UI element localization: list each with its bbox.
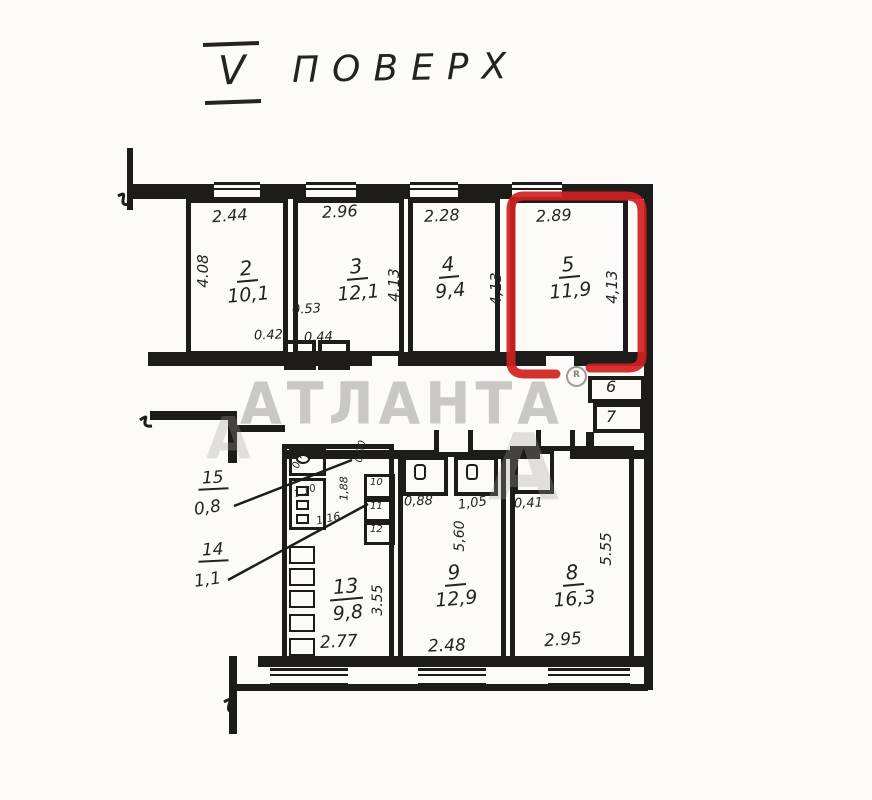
room-14-number: 14 [197, 539, 228, 563]
kitchen-fixture-icon [289, 590, 315, 608]
dim-closet-right: 0.44 [304, 329, 333, 345]
room-13-area: 9,8 [332, 601, 364, 626]
watermark-ghost-letter: А [488, 414, 559, 521]
room-13-number: 13 [328, 573, 364, 602]
dim-cluster-height: 1,88 [338, 459, 351, 519]
outer-wall-left-stub [127, 148, 133, 210]
room-2-label: 2 10,1 [224, 254, 271, 307]
room-7-outline [593, 403, 644, 433]
room-3-area: 12,1 [336, 280, 380, 306]
room-4-label: 4 9,4 [432, 251, 466, 303]
window-icon [418, 668, 486, 688]
kitchen-fixture-icon [289, 546, 315, 564]
room-6-number: 6 [606, 377, 616, 396]
room-12-number: 12 [370, 524, 383, 535]
lower-left-wall [229, 656, 237, 734]
window-icon [548, 668, 630, 688]
dim-room2-width: 2.44 [211, 205, 248, 226]
room-13-label: 13 9,8 [328, 573, 366, 626]
toilet-icon [414, 464, 426, 480]
room-3-label: 3 12,1 [334, 252, 381, 305]
dim-room13-width: 2.77 [320, 631, 359, 653]
kitchen-fixture-icon [289, 568, 315, 586]
room-5-area: 11,9 [548, 278, 592, 304]
dim-room5-height: 4,13 [603, 257, 621, 317]
room-11-number: 11 [370, 501, 383, 512]
watermark-ghost-letter: А [206, 404, 251, 472]
registered-trademark-icon: R [566, 366, 587, 387]
room-4-number: 4 [437, 251, 460, 279]
room-2-number: 2 [235, 255, 258, 283]
stove-icon [289, 614, 315, 632]
toilet-icon [466, 464, 478, 480]
room-8-label: 8 16,3 [550, 558, 597, 611]
room-2-area: 10,1 [226, 282, 270, 308]
dim-room3-height: 4,13 [385, 255, 403, 315]
dim-room4-height: 4,13 [487, 259, 505, 319]
room-4-area: 9,4 [434, 279, 466, 304]
room-14-area: 1,1 [193, 568, 223, 592]
room-8-number: 8 [561, 559, 584, 587]
floor-title: ПОВЕРХ [292, 46, 520, 91]
room-3-number: 3 [345, 253, 368, 281]
room-10-number: 10 [370, 477, 383, 488]
outer-wall-right [644, 184, 653, 690]
dim-room5-width: 2.89 [536, 205, 573, 226]
dim-room8-height: 5.55 [597, 519, 615, 579]
room-9-area: 12,9 [434, 586, 478, 612]
dim-room9-width: 2.48 [428, 635, 467, 656]
room-9-label: 9 12,9 [432, 558, 479, 611]
dim-room2-height: 4.08 [194, 241, 212, 301]
outer-wall-top [130, 184, 652, 199]
window-icon [270, 668, 348, 688]
dim-closet-left: 0.42 [254, 327, 283, 343]
appliance-icon [296, 514, 309, 524]
room-15-area: 0,8 [193, 496, 223, 520]
room-14-callout: 14 [197, 539, 228, 563]
dim-wc-left: 0,88 [404, 493, 433, 509]
sink-icon [289, 638, 315, 656]
dim-room9-height: 5,60 [452, 506, 468, 566]
floorplan-page: V ПОВЕРХ [0, 0, 872, 800]
dim-room13-height: 3.55 [370, 570, 386, 630]
dim-closet-depth: 0.53 [292, 301, 322, 317]
dim-room8-width: 2.95 [543, 629, 582, 652]
room-5-number: 5 [557, 251, 580, 279]
room-5-label: 5 11,9 [546, 250, 593, 303]
room-8-area: 16,3 [552, 586, 596, 612]
room-6-outline [588, 376, 645, 403]
room-7-number: 7 [606, 407, 616, 426]
dim-room3-width: 2.96 [322, 201, 359, 222]
floor-numeral: V [203, 41, 261, 105]
appliance-icon [296, 500, 309, 510]
dim-room4-width: 2.28 [424, 205, 461, 226]
